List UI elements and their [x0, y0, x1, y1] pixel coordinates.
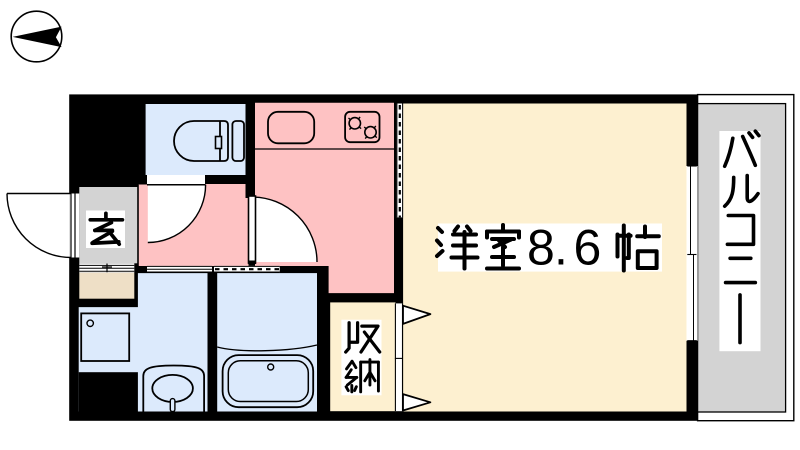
svg-text:8: 8 — [527, 220, 555, 276]
svg-text:.: . — [554, 220, 568, 276]
svg-text:6: 6 — [574, 220, 602, 276]
